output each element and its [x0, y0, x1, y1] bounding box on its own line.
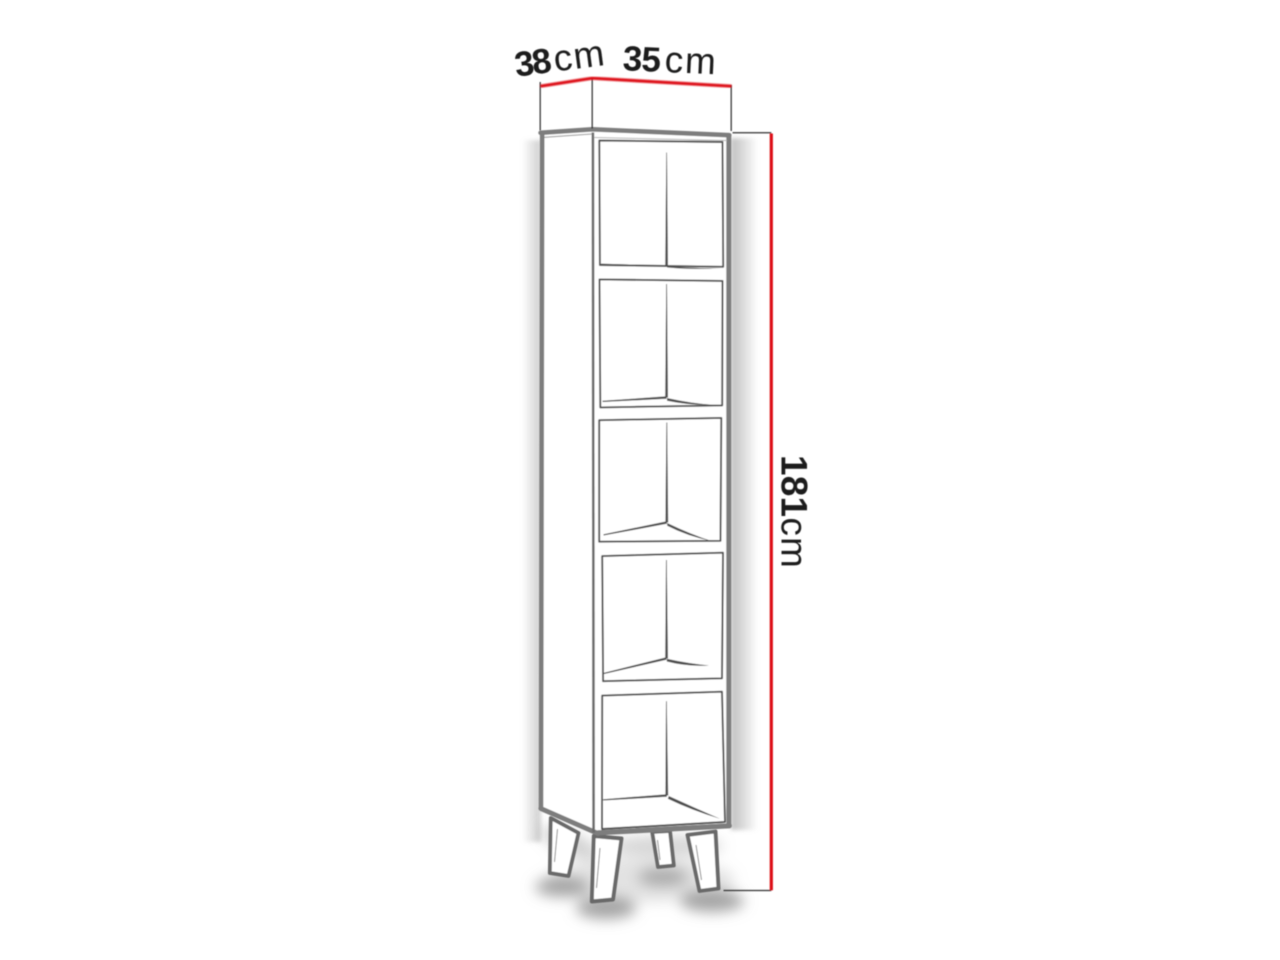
svg-text:181cm: 181cm [774, 455, 815, 569]
svg-text:35cm: 35cm [622, 37, 719, 82]
